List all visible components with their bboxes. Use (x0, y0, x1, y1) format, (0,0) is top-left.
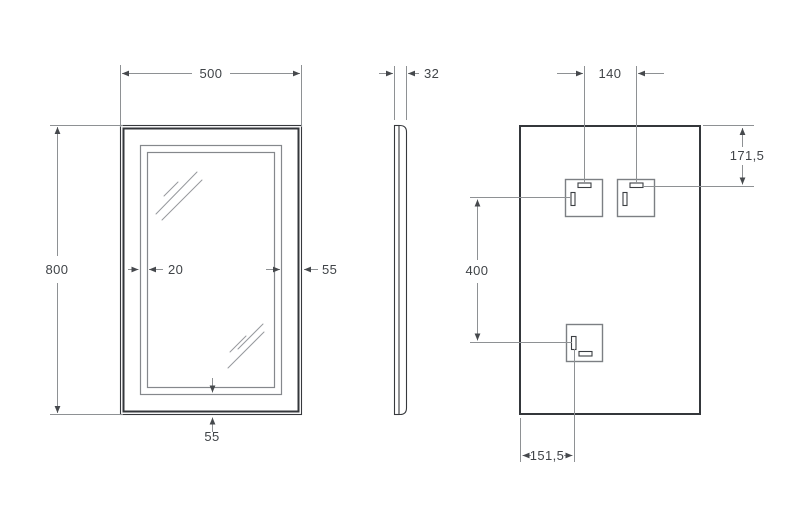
bracket-top-right (618, 180, 655, 217)
dimension-label-bracket-span: 400 (466, 263, 489, 278)
drawing-canvas: 500 800 20 55 55 (0, 0, 800, 509)
glass-shine-lower (228, 324, 264, 368)
bracket-side-slot (571, 193, 575, 206)
shine-line (228, 332, 264, 368)
glass-shine-upper (156, 172, 202, 220)
dimension-label-bracket-spacing: 140 (599, 66, 622, 81)
back-left-offset-dimension: 151,5 (521, 349, 575, 463)
side-view: 32 (379, 66, 439, 415)
front-width-dimension: 500 (121, 65, 302, 127)
bracket-side-slot (623, 193, 627, 206)
side-depth-dimension: 32 (379, 66, 439, 120)
dimension-label-side-inset: 55 (322, 262, 337, 277)
back-top-offset-dimension: 171,5 (643, 126, 764, 187)
dimension-label-width: 500 (200, 66, 223, 81)
dimension-label-left-offset: 151,5 (530, 448, 565, 463)
dimension-label-height: 800 (46, 262, 69, 277)
shine-line (162, 180, 202, 220)
front-view: 500 800 20 55 55 (46, 65, 338, 444)
dimension-label-band: 20 (168, 262, 183, 277)
bracket-side-slot (572, 337, 577, 350)
side-body-profile (399, 126, 407, 415)
bracket-top-left (566, 180, 603, 217)
bracket-hanging-slot (578, 183, 591, 188)
back-bracket-span-dimension: 400 (466, 198, 572, 343)
side-glass-panel (395, 126, 400, 415)
bracket-hanging-slot (630, 183, 643, 188)
back-panel (520, 126, 700, 414)
front-band-dimension: 20 (128, 262, 183, 277)
back-view: 140 171,5 400 151,5 (466, 66, 765, 463)
dimension-label-depth: 32 (424, 66, 439, 81)
back-bracket-spacing-dimension: 140 (557, 66, 664, 183)
bracket-hanging-slot (579, 352, 592, 357)
front-height-dimension: 800 (46, 126, 123, 415)
shine-line (156, 172, 197, 214)
dimension-label-bottom-inset: 55 (204, 429, 219, 444)
dimension-label-top-offset: 171,5 (730, 148, 765, 163)
mirror-technical-drawing: 500 800 20 55 55 (0, 0, 800, 509)
led-band-inner-line (148, 153, 275, 388)
